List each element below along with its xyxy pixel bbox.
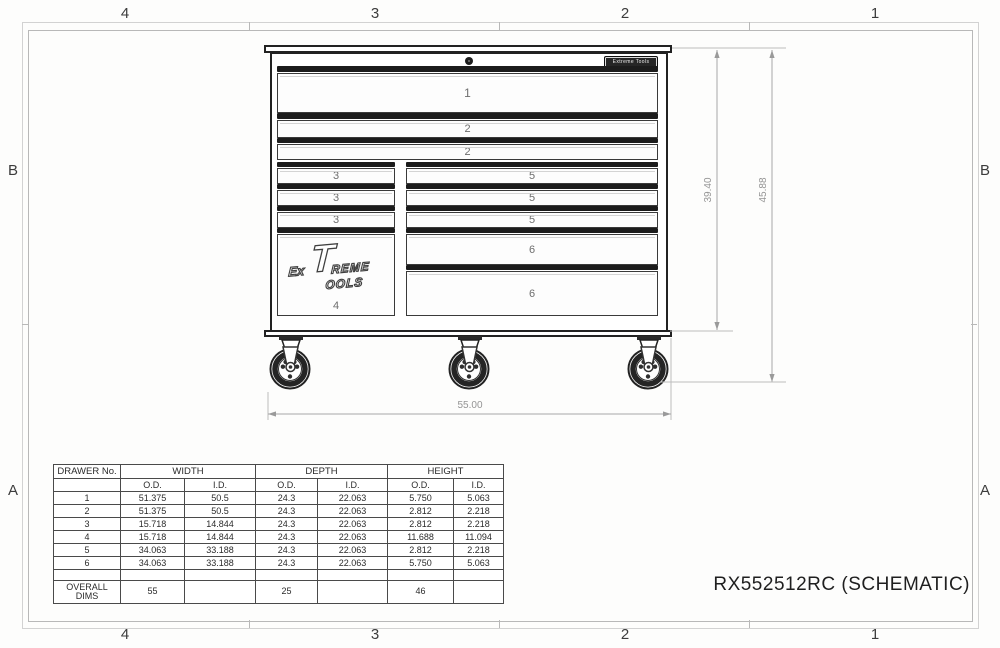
caster-wheel-left <box>263 336 319 392</box>
table-cell-r1-c4: 22.063 <box>318 492 388 505</box>
table-cell-r3-c6: 2.218 <box>454 518 504 531</box>
table-header-group-depth: DEPTH <box>256 465 388 479</box>
table-cell-r5-c6: 2.218 <box>454 544 504 557</box>
table-cell-r4-c2: 14.844 <box>185 531 256 544</box>
caster-wheel-middle <box>442 336 498 392</box>
drawer-4-front: Ex T REME OOLS 4 <box>277 234 395 316</box>
drawer-2a-handle <box>277 113 658 119</box>
logo-ools-text: OOLS <box>325 276 364 291</box>
zone-bottom-2: 2 <box>610 626 640 643</box>
full-width-drawers: 1 2 2 <box>277 66 658 165</box>
table-cell-r1-c3: 24.3 <box>256 492 318 505</box>
zone-top-2: 2 <box>610 5 640 22</box>
schematic-title: RX552512RC (SCHEMATIC) <box>713 574 970 596</box>
table-spacer-cell-2 <box>185 570 256 581</box>
table-cell-r2-c4: 22.063 <box>318 505 388 518</box>
table-spacer-cell-3 <box>256 570 318 581</box>
table-overall-value-3 <box>318 581 388 604</box>
drawer-6b-handle <box>406 265 658 270</box>
table-subheader-5: I.D. <box>454 479 504 492</box>
table-cell-r3-c0: 3 <box>54 518 121 531</box>
drawer-5b-front: 5 <box>406 190 658 206</box>
zone-top-3: 3 <box>360 5 390 22</box>
table-subheader-0: O.D. <box>121 479 185 492</box>
drawer-2b-front: 2 <box>277 144 658 160</box>
column-divider <box>395 162 406 316</box>
table-cell-r4-c0: 4 <box>54 531 121 544</box>
zone-top-1: 1 <box>860 5 890 22</box>
drawer-1-handle <box>277 66 658 72</box>
drawer-3b-front: 3 <box>277 190 395 206</box>
table-spacer-cell-5 <box>388 570 454 581</box>
table-cell-r2-c0: 2 <box>54 505 121 518</box>
left-drawer-column: 3 3 3 Ex T REME OOLS 4 <box>277 162 395 316</box>
table-cell-r4-c3: 24.3 <box>256 531 318 544</box>
table-overall-value-4: 46 <box>388 581 454 604</box>
logo-ex-text: Ex <box>288 264 305 278</box>
zone-tick-top-3 <box>749 22 750 30</box>
table-cell-r6-c0: 6 <box>54 557 121 570</box>
zone-tick-bottom-2 <box>499 620 500 628</box>
table-cell-r5-c3: 24.3 <box>256 544 318 557</box>
table-row-drawer-1: 151.37550.524.322.0635.7505.063 <box>54 492 504 505</box>
table-cell-r3-c4: 22.063 <box>318 518 388 531</box>
zone-top-4: 4 <box>110 5 140 22</box>
table-spacer-cell-4 <box>318 570 388 581</box>
zone-left-a: A <box>0 482 28 499</box>
table-overall-value-0: 55 <box>121 581 185 604</box>
table-cell-r1-c6: 5.063 <box>454 492 504 505</box>
table-header-drawer-no: DRAWER No. <box>54 465 121 479</box>
zone-tick-top-2 <box>499 22 500 30</box>
zone-tick-bottom-3 <box>749 620 750 628</box>
zone-bottom-1: 1 <box>860 626 890 643</box>
table-row-drawer-6: 634.06333.18824.322.0635.7505.063 <box>54 557 504 570</box>
table-cell-r3-c5: 2.812 <box>388 518 454 531</box>
table-cell-r5-c1: 34.063 <box>121 544 185 557</box>
table-cell-r4-c5: 11.688 <box>388 531 454 544</box>
table-header-group-width: WIDTH <box>121 465 256 479</box>
table-cell-r1-c1: 51.375 <box>121 492 185 505</box>
table-cell-r2-c1: 51.375 <box>121 505 185 518</box>
table-cell-r6-c3: 24.3 <box>256 557 318 570</box>
table-subheader-blank <box>54 479 121 492</box>
table-cell-r1-c0: 1 <box>54 492 121 505</box>
drawer-3a-handle <box>277 162 395 167</box>
table-cell-r6-c2: 33.188 <box>185 557 256 570</box>
drawer-5c-front: 5 <box>406 212 658 228</box>
table-cell-r2-c5: 2.812 <box>388 505 454 518</box>
table-row-drawer-3: 315.71814.84424.322.0632.8122.218 <box>54 518 504 531</box>
table-cell-r5-c5: 2.812 <box>388 544 454 557</box>
drawer-2b-handle <box>277 138 658 143</box>
table-cell-r3-c2: 14.844 <box>185 518 256 531</box>
table-spacer-cell-1 <box>121 570 185 581</box>
schematic-sheet: 4 3 2 1 4 3 2 1 B A B A Extreme Tools 1 … <box>0 0 1000 648</box>
table-cell-r2-c3: 24.3 <box>256 505 318 518</box>
table-spacer-cell-6 <box>454 570 504 581</box>
drawer-4-number: 4 <box>278 300 394 312</box>
table-cell-r1-c5: 5.750 <box>388 492 454 505</box>
zone-tick-right <box>971 324 977 325</box>
table-row-drawer-2: 251.37550.524.322.0632.8122.218 <box>54 505 504 518</box>
zone-tick-left <box>22 324 28 325</box>
drawer-3c-front: 3 <box>277 212 395 228</box>
table-overall-value-5 <box>454 581 504 604</box>
table-spacer-cell-0 <box>54 570 121 581</box>
table-header-group-height: HEIGHT <box>388 465 504 479</box>
table-cell-r5-c2: 33.188 <box>185 544 256 557</box>
table-row-overall: OVERALL DIMS552546 <box>54 581 504 604</box>
table-cell-r6-c6: 5.063 <box>454 557 504 570</box>
table-cell-r3-c1: 15.718 <box>121 518 185 531</box>
table-cell-r5-c0: 5 <box>54 544 121 557</box>
drawer-6a-front: 6 <box>406 234 658 265</box>
table-overall-label: OVERALL DIMS <box>54 581 121 604</box>
table-cell-r3-c3: 24.3 <box>256 518 318 531</box>
zone-left-b: B <box>0 162 28 179</box>
split-drawer-section: 3 3 3 Ex T REME OOLS 4 <box>277 162 658 316</box>
table-cell-r2-c6: 2.218 <box>454 505 504 518</box>
drawer-3a-front: 3 <box>277 168 395 184</box>
zone-right-b: B <box>970 162 1000 179</box>
drawer-6a-handle <box>406 228 658 233</box>
table-cell-r1-c2: 50.5 <box>185 492 256 505</box>
zone-bottom-3: 3 <box>360 626 390 643</box>
right-drawer-column: 5 5 5 6 6 <box>406 162 658 316</box>
drawer-2a-front: 2 <box>277 120 658 138</box>
table-cell-r6-c1: 34.063 <box>121 557 185 570</box>
table-cell-r4-c4: 22.063 <box>318 531 388 544</box>
zone-right-a: A <box>970 482 1000 499</box>
table-subheader-3: I.D. <box>318 479 388 492</box>
extreme-tools-logo: Ex T REME OOLS <box>285 242 391 304</box>
drawer-5a-handle <box>406 162 658 167</box>
table-cell-r4-c6: 11.094 <box>454 531 504 544</box>
table-subheader-1: I.D. <box>185 479 256 492</box>
table-cell-r6-c5: 5.750 <box>388 557 454 570</box>
drawer-5c-handle <box>406 206 658 211</box>
table-row-drawer-4: 415.71814.84424.322.06311.68811.094 <box>54 531 504 544</box>
drawer-1-front: 1 <box>277 73 658 113</box>
caster-wheel-right <box>621 336 677 392</box>
drawer-dims-table: DRAWER No.WIDTHDEPTHHEIGHTO.D.I.D.O.D.I.… <box>53 464 504 604</box>
drawer-3b-handle <box>277 184 395 189</box>
table-cell-r5-c4: 22.063 <box>318 544 388 557</box>
drawer-4-handle <box>277 228 395 233</box>
keyhole-lock-icon <box>465 57 473 65</box>
zone-bottom-4: 4 <box>110 626 140 643</box>
drawer-5b-handle <box>406 184 658 189</box>
zone-tick-bottom-1 <box>249 620 250 628</box>
table-cell-r2-c2: 50.5 <box>185 505 256 518</box>
drawer-5a-front: 5 <box>406 168 658 184</box>
table-overall-value-2: 25 <box>256 581 318 604</box>
cabinet-body: Extreme Tools 1 2 2 3 3 3 Ex <box>270 52 668 332</box>
table-subheader-4: O.D. <box>388 479 454 492</box>
zone-tick-top-1 <box>249 22 250 30</box>
drawer-6b-front: 6 <box>406 271 658 316</box>
table-cell-r6-c4: 22.063 <box>318 557 388 570</box>
drawer-3c-handle <box>277 206 395 211</box>
table-cell-r4-c1: 15.718 <box>121 531 185 544</box>
logo-reme-text: REME <box>331 260 370 275</box>
table-subheader-2: O.D. <box>256 479 318 492</box>
table-overall-value-1 <box>185 581 256 604</box>
table-row-drawer-5: 534.06333.18824.322.0632.8122.218 <box>54 544 504 557</box>
